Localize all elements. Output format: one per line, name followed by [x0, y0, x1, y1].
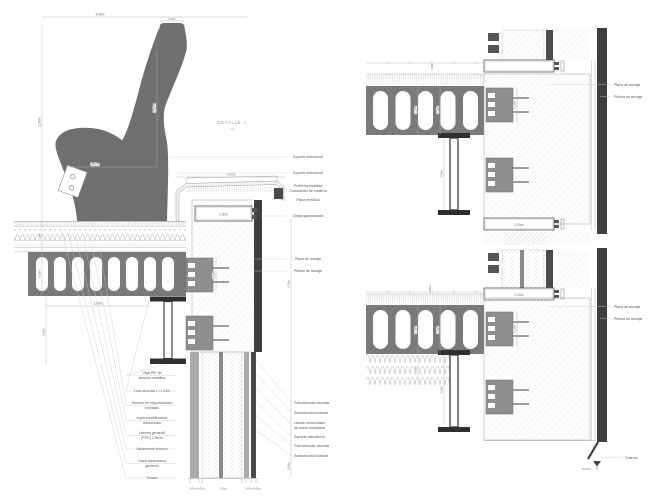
- label-viga-1: Viga IPE de: [143, 371, 162, 375]
- label-lamas-2: de acero inoxidable: [294, 426, 325, 430]
- label-mortero-1: Mortero de regularización: [132, 401, 173, 405]
- label-coronacion: Coronación de cubierta: [289, 189, 326, 193]
- label-pletina-anclaje-c: Pletina de anclaje: [614, 317, 642, 321]
- seat-profile: [55, 23, 186, 221]
- dim-ring-beam-width: 0,30m: [219, 213, 228, 217]
- hollow-core-slab-b: [366, 86, 484, 135]
- dim-roof-layers: 0,10m: [38, 233, 42, 241]
- anchor-strip-c: [597, 292, 607, 442]
- label-lamas-1: Lamas horizontales: [294, 421, 325, 425]
- dim-slab-inner-c: 0,25m: [436, 326, 440, 334]
- leaders-bottom-right: [256, 360, 292, 456]
- label-placa-anclaje: Placa de anclaje: [295, 257, 321, 261]
- dim-anchor-c: 0,15m: [513, 325, 517, 333]
- dim-wall-lower: 0,65m: [287, 462, 291, 470]
- dim-layers-b: 0,05m: [430, 62, 434, 70]
- detail-title: DETALLE A: [217, 120, 246, 125]
- dim-level-c: ±0,00m: [582, 467, 592, 471]
- level-marker: [593, 461, 601, 470]
- dim-beam-depth: 0,50m: [42, 328, 46, 336]
- label-policarbonato-2: Policarbonato alveolar: [294, 444, 330, 448]
- label-capa-1: Capa separadora: [138, 459, 166, 463]
- roof-layers-b: [366, 74, 484, 86]
- dim-seat-cap: 0,33m: [168, 17, 176, 21]
- dim-beam-c: 0,50m: [440, 386, 444, 394]
- label-goteron: Goterón: [625, 456, 638, 460]
- label-viga-2: sección metálica: [139, 376, 166, 380]
- label-placa-anclaje-b: Placa de anclaje: [614, 83, 640, 87]
- label-soporte-3: Soporte estructural: [294, 435, 325, 439]
- dim-slab-thickness: 0,30m: [38, 270, 42, 278]
- label-lamina-1: Lámina geotextil: [139, 431, 165, 435]
- dim-ring-beam-c: 0,30m: [515, 293, 524, 297]
- label-imperm-2: bituminosa: [143, 421, 160, 425]
- dim-slab-span: 1,00m: [94, 302, 103, 306]
- dim-beam-b: 0,50m: [440, 170, 444, 178]
- dim-parapet-width: 0,50m: [227, 173, 236, 177]
- label-subestructura-2: Subestructura tubular: [294, 454, 329, 458]
- dim-anchor-b: 0,15m: [513, 101, 517, 109]
- label-aislamiento: Aislamiento térmico: [136, 447, 167, 451]
- dim-base-right: 0,02m 0,03m: [245, 487, 261, 491]
- roof-layers-c: [366, 294, 484, 305]
- label-perfileria: Perfilería metálica: [294, 184, 323, 188]
- label-lamina-2: (PVC) 1,5mm: [141, 436, 163, 440]
- dim-seat-depth: 0,40m: [91, 163, 100, 167]
- label-imperm-1: Impermeabilización: [137, 416, 168, 420]
- anchor-strip-b: [597, 74, 607, 234]
- dim-insulation-c: 0,60m: [414, 366, 418, 374]
- label-mortero-2: nivelado: [145, 406, 158, 410]
- detail-a: 5,43m 0,33m 0,60m 0,40m 1,30m 0,10m 0,30…: [14, 13, 330, 491]
- ipe-beam: [150, 297, 186, 365]
- label-soporte-2: Soporte estructural: [293, 171, 324, 175]
- dim-back-height: 0,60m: [153, 103, 157, 112]
- label-policarbonato-1: Policarbonato alveolar: [294, 401, 330, 405]
- label-placa-metalica: Placa metálica: [296, 198, 319, 202]
- drawing-canvas: 5,43m 0,33m 0,60m 0,40m 1,30m 0,10m 0,30…: [0, 0, 667, 500]
- hollow-core-slab: [28, 252, 186, 296]
- label-subestructura-1: Subestructura tubular: [294, 411, 329, 415]
- dim-anchor-plate: 0,15m: [212, 271, 216, 279]
- insulation-c: [366, 354, 452, 385]
- label-pletina-anclaje: Pletina de anclaje: [294, 269, 322, 273]
- facade-wall-lower: [188, 352, 258, 483]
- label-placa-anclaje-c: Placa de anclaje: [614, 305, 640, 309]
- ring-beam-bottom: [484, 218, 564, 230]
- label-losa: Losa alveolar L=1,20m: [134, 389, 170, 393]
- ring-beam-top: [484, 60, 564, 72]
- label-pletina-anclaje-b: Pletina de anclaje: [614, 95, 642, 99]
- label-solado: Solado: [146, 476, 157, 480]
- detail-c: 0,30m 0,05m 0,30m 0,25m 0,60m 0,50m 0,15…: [366, 248, 642, 471]
- label-chapa: Chapa galvanizada: [293, 214, 324, 218]
- dim-layers-c: 0,05m: [428, 285, 432, 293]
- dim-base-mid: 0,15m: [219, 487, 227, 491]
- dim-slab-b: 0,30m: [414, 106, 418, 114]
- dim-wall-upper: 0,70m: [287, 280, 291, 288]
- dim-total-width: 5,43m: [96, 13, 105, 17]
- dim-slab-c: 0,30m: [414, 326, 418, 334]
- dim-slab-inner-b: 0,25m: [436, 106, 440, 114]
- label-capa-2: geotextil: [145, 464, 159, 468]
- facade-wall-upper: [186, 200, 262, 352]
- dim-ring-beam-b: 0,30m: [515, 223, 524, 227]
- detail-b: 0,05m 0,30m 0,25m 0,50m 0,15m 0,30m Plac…: [366, 28, 642, 245]
- detail-scale: 1:4: [230, 127, 235, 131]
- wall-stub-top-c: [488, 248, 607, 292]
- label-soporte-1: Soporte estructural: [293, 155, 324, 159]
- architectural-detail-sheet: 5,43m 0,33m 0,60m 0,40m 1,30m 0,10m 0,30…: [0, 0, 667, 500]
- dim-base-left: 0,03m 0,02m: [189, 487, 205, 491]
- dim-total-height: 1,30m: [38, 117, 42, 126]
- drip-edge: [588, 442, 598, 459]
- hollow-core-slab-c: [366, 305, 484, 354]
